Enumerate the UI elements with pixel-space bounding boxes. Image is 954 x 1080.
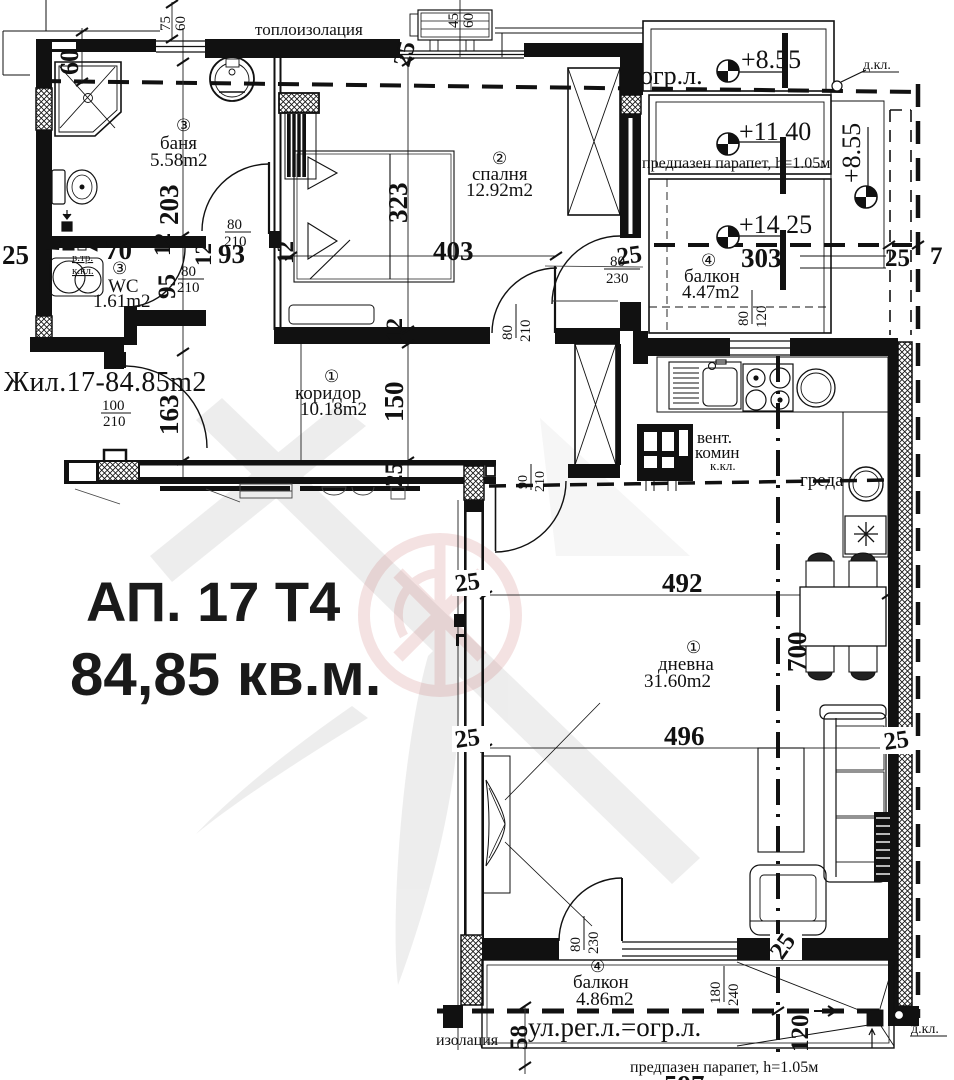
svg-text:д.кл.: д.кл. xyxy=(863,58,891,73)
svg-text:230: 230 xyxy=(586,932,602,955)
svg-text:изолация: изолация xyxy=(436,1032,499,1049)
svg-text:+14.25: +14.25 xyxy=(739,210,812,239)
svg-text:12: 12 xyxy=(382,318,407,341)
svg-text:25: 25 xyxy=(381,462,408,487)
svg-text:4.86m2: 4.86m2 xyxy=(576,989,634,1010)
svg-text:60: 60 xyxy=(173,16,189,31)
svg-text:60: 60 xyxy=(55,49,84,75)
svg-text:+11.40: +11.40 xyxy=(739,117,811,146)
svg-text:+8.55: +8.55 xyxy=(741,45,801,74)
svg-text:25: 25 xyxy=(2,240,29,270)
svg-text:303: 303 xyxy=(741,243,782,273)
svg-text:7: 7 xyxy=(930,243,943,270)
svg-text:д.кл.: д.кл. xyxy=(911,1022,939,1037)
svg-text:210: 210 xyxy=(518,320,534,343)
svg-text:12: 12 xyxy=(150,233,175,256)
svg-text:25: 25 xyxy=(885,245,910,272)
svg-text:80: 80 xyxy=(181,264,196,280)
svg-text:31.60m2: 31.60m2 xyxy=(644,671,711,692)
svg-text:к.кл.: к.кл. xyxy=(72,265,94,277)
svg-text:403: 403 xyxy=(433,236,474,266)
svg-text:25: 25 xyxy=(453,724,482,754)
svg-text:180: 180 xyxy=(708,982,724,1005)
svg-text:предпазен парапет, h=1.05м: предпазен парапет, h=1.05м xyxy=(630,1059,818,1076)
svg-text:80: 80 xyxy=(227,217,242,233)
svg-text:Жил.17-84.85m2: Жил.17-84.85m2 xyxy=(4,367,207,398)
svg-text:210: 210 xyxy=(224,234,247,250)
svg-text:240: 240 xyxy=(726,984,742,1007)
svg-text:топлоизолация: топлоизолация xyxy=(255,20,363,39)
svg-text:4.47m2: 4.47m2 xyxy=(682,282,740,303)
svg-text:70: 70 xyxy=(105,235,132,265)
svg-text:80: 80 xyxy=(610,254,625,270)
svg-text:80: 80 xyxy=(500,325,516,340)
svg-text:163: 163 xyxy=(154,395,184,436)
svg-text:предпазен парапет, h=1.05м: предпазен парапет, h=1.05м xyxy=(642,155,830,172)
svg-text:492: 492 xyxy=(662,568,703,598)
svg-text:120: 120 xyxy=(787,1015,814,1053)
svg-text:230: 230 xyxy=(606,271,629,287)
svg-text:25: 25 xyxy=(453,568,482,598)
svg-text:120: 120 xyxy=(754,306,770,329)
svg-text:10.18m2: 10.18m2 xyxy=(300,399,367,420)
svg-text:12: 12 xyxy=(273,241,298,264)
svg-text:203: 203 xyxy=(154,185,184,226)
svg-text:84,85 кв.м.: 84,85 кв.м. xyxy=(70,641,381,708)
svg-text:45: 45 xyxy=(446,13,462,28)
svg-text:5.58m2: 5.58m2 xyxy=(150,150,208,171)
svg-text:150: 150 xyxy=(379,382,409,423)
svg-text:80: 80 xyxy=(736,311,752,326)
svg-text:1.61m2: 1.61m2 xyxy=(93,291,151,312)
svg-text:к.кл.: к.кл. xyxy=(710,458,736,473)
svg-text:60: 60 xyxy=(461,13,477,28)
svg-text:700: 700 xyxy=(782,632,812,673)
svg-text:12: 12 xyxy=(191,243,216,266)
svg-text:80: 80 xyxy=(568,937,584,952)
svg-text:496: 496 xyxy=(664,721,705,751)
svg-text:в.тр.: в.тр. xyxy=(72,252,93,264)
svg-text:210: 210 xyxy=(533,471,548,492)
svg-text:210: 210 xyxy=(177,280,200,296)
svg-text:+8.55: +8.55 xyxy=(837,123,866,183)
svg-text:100: 100 xyxy=(102,398,125,414)
svg-text:ул.рег.л.=огр.л.: ул.рег.л.=огр.л. xyxy=(528,1012,701,1042)
svg-text:12.92m2: 12.92m2 xyxy=(466,180,533,201)
svg-text:323: 323 xyxy=(383,183,413,224)
svg-text:АП. 17 Т4: АП. 17 Т4 xyxy=(86,570,340,633)
svg-text:90: 90 xyxy=(516,475,531,489)
svg-text:210: 210 xyxy=(103,414,126,430)
svg-text:75: 75 xyxy=(158,16,174,31)
svg-text:25: 25 xyxy=(882,726,911,756)
svg-text:греда: греда xyxy=(800,470,844,491)
svg-text:огр.л.: огр.л. xyxy=(640,61,703,90)
